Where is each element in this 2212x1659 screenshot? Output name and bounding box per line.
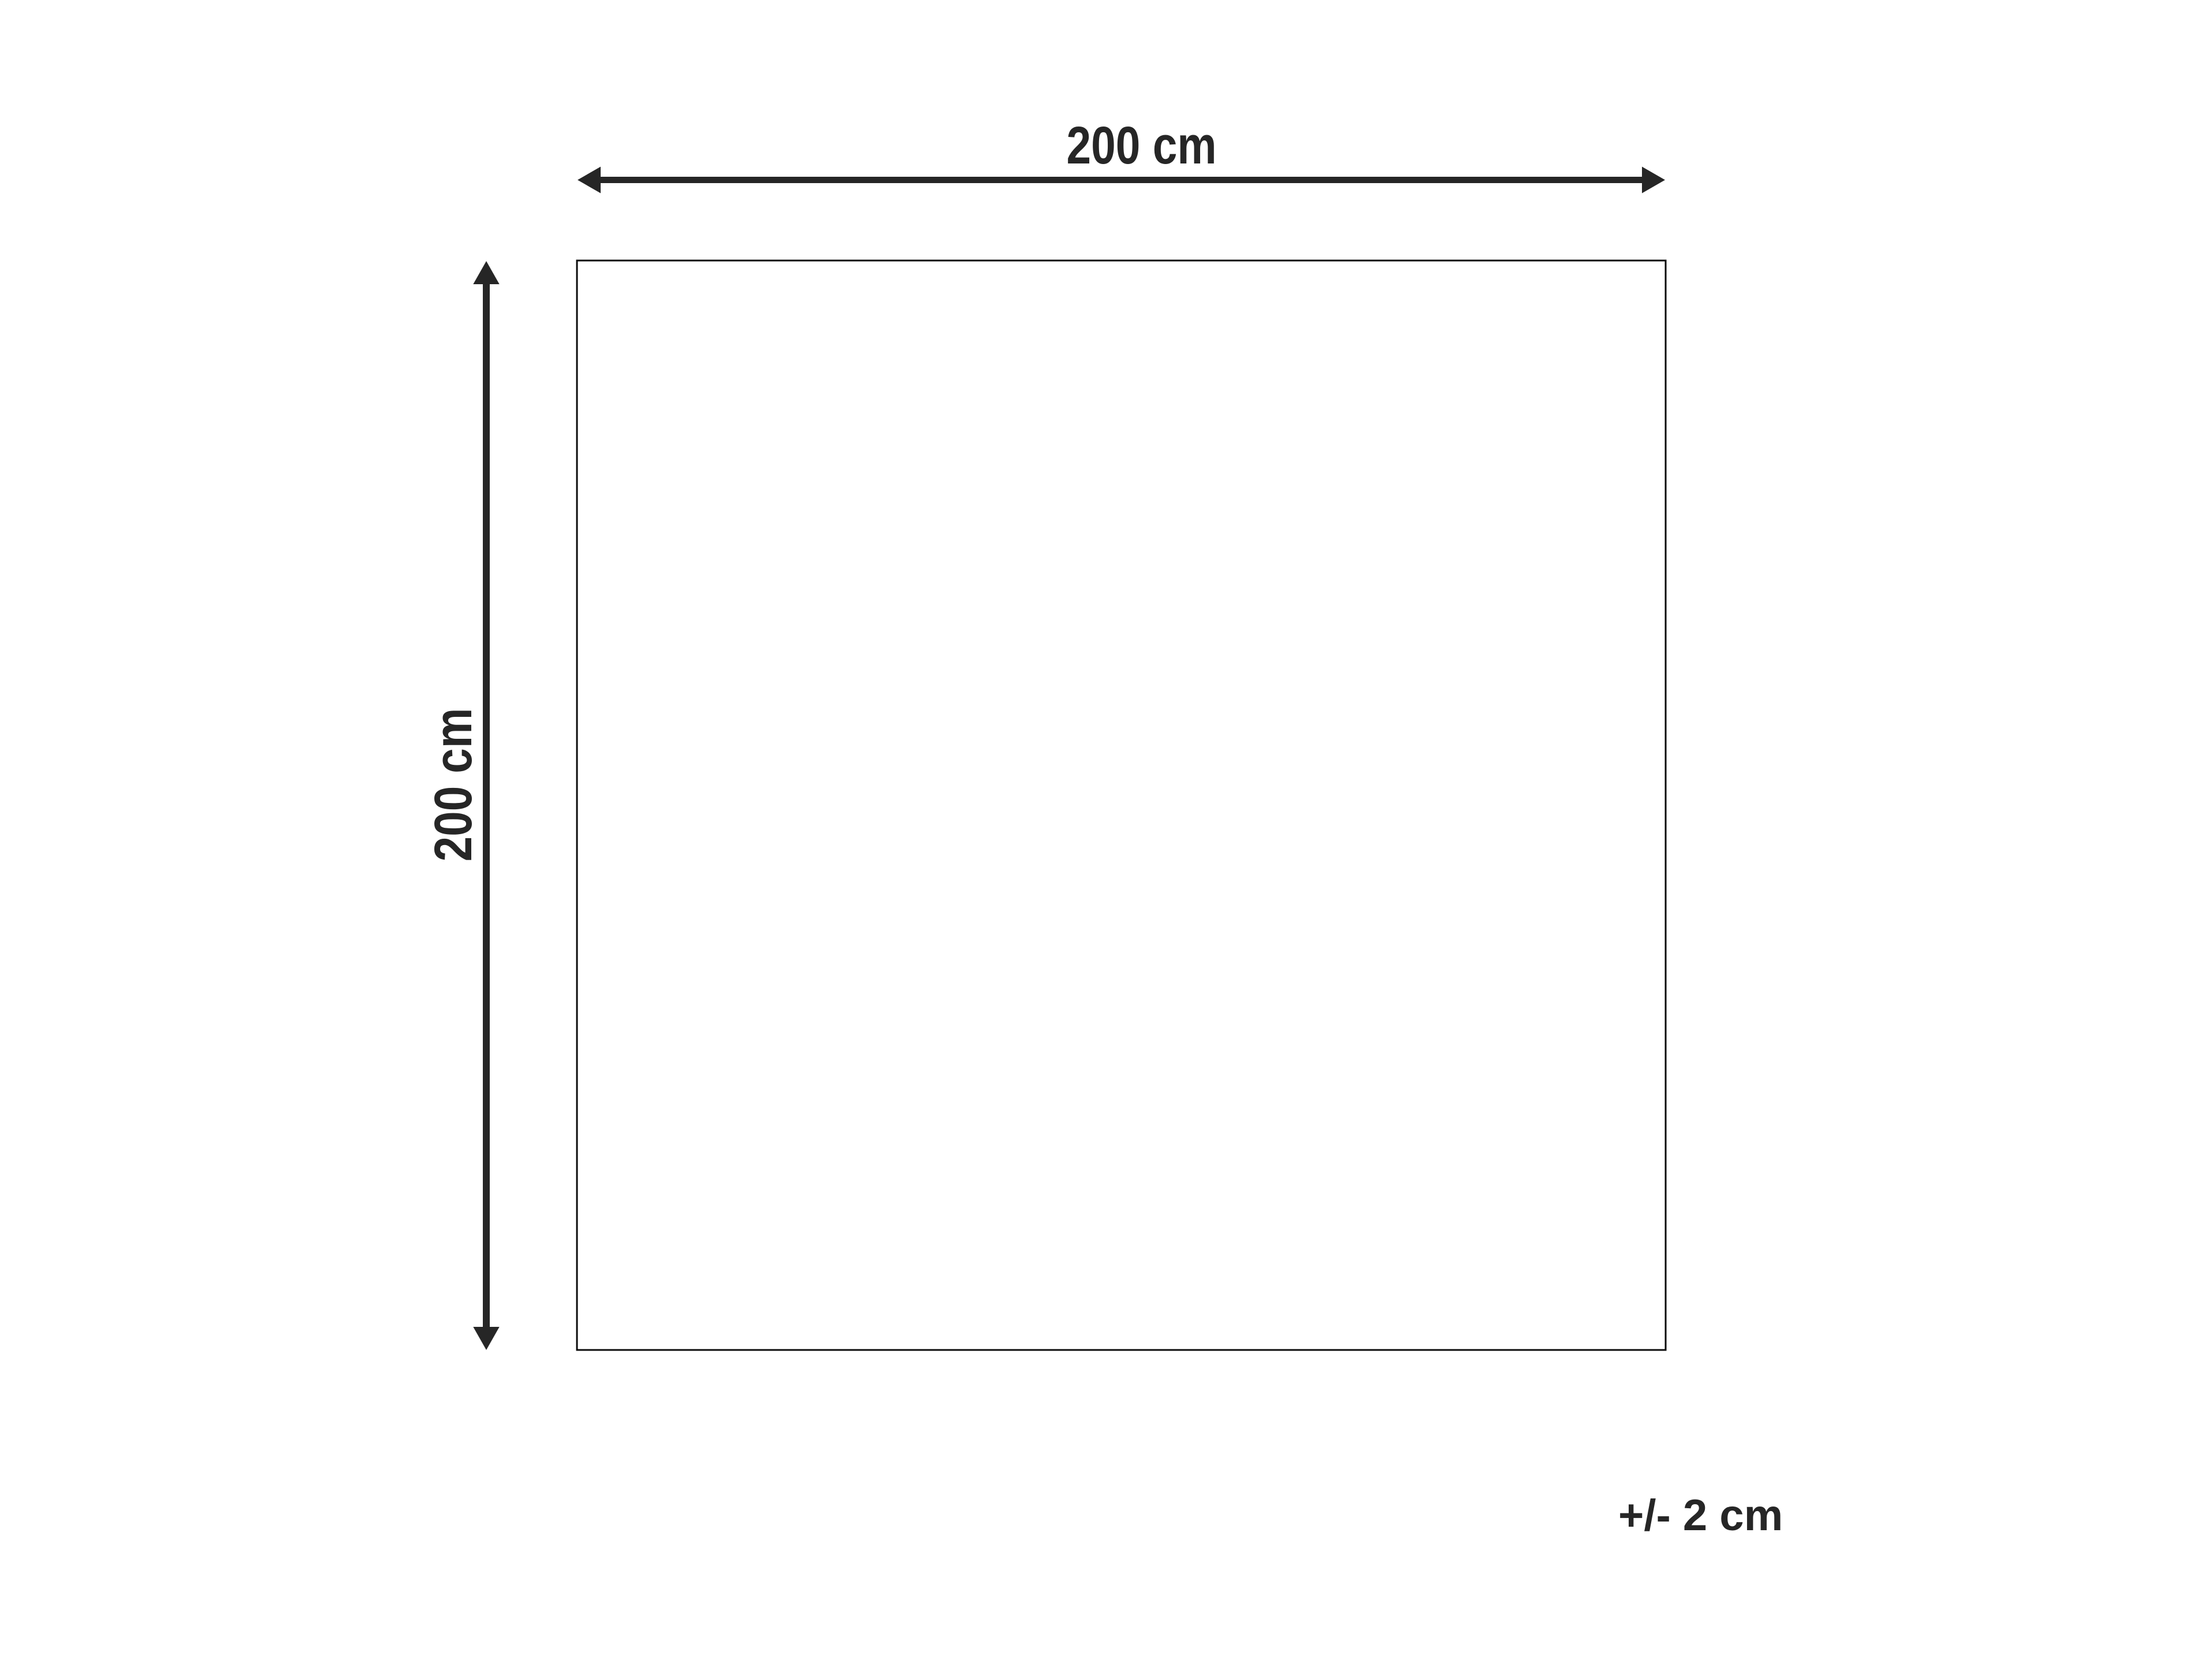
- svg-text:+/- 2 cm: +/- 2 cm: [1618, 1491, 1783, 1540]
- svg-text:200 cm: 200 cm: [424, 708, 483, 862]
- svg-text:200 cm: 200 cm: [1067, 116, 1217, 175]
